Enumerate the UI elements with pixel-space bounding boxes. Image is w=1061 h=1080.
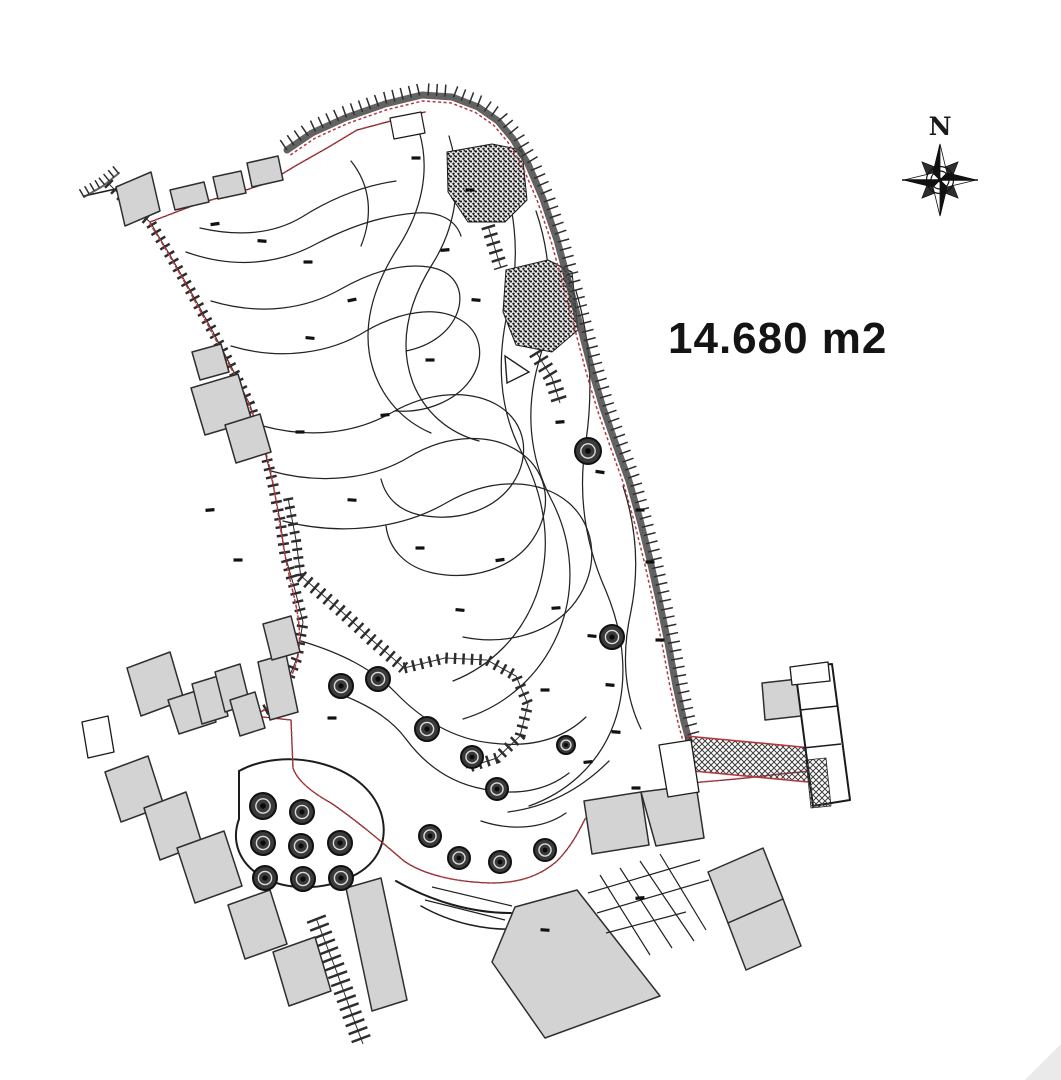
cliff-hatch-tick <box>504 120 513 128</box>
structure-outline <box>790 662 830 685</box>
building-footprint <box>584 792 649 854</box>
compass-rose-icon <box>900 140 980 220</box>
spot-elevation-mark <box>556 422 565 423</box>
tree-symbol-core <box>298 843 303 848</box>
tree-symbol-core <box>262 875 267 880</box>
tree-symbol-core <box>300 876 305 881</box>
tree-symbol-core <box>260 840 265 845</box>
cliff-hatch-tick <box>509 127 518 135</box>
spot-elevation-mark <box>258 241 267 242</box>
tree-symbol-core <box>337 840 342 845</box>
spot-elevation-mark <box>206 510 215 511</box>
contour-line <box>481 813 566 827</box>
building-footprint <box>116 172 160 226</box>
north-label: N <box>900 112 980 141</box>
spot-elevation-mark <box>472 300 481 301</box>
contour-line <box>351 161 368 246</box>
wall-hatch-tick <box>113 166 119 173</box>
tree-symbol-core <box>338 683 343 688</box>
step-line <box>620 868 672 948</box>
wall-hatch-tick <box>104 174 110 181</box>
building-footprint <box>263 616 300 660</box>
building-footprint <box>273 937 331 1006</box>
corner-shade <box>1025 1044 1061 1080</box>
tree-symbol-core <box>495 787 500 792</box>
step-line <box>606 912 686 933</box>
spot-elevation-mark <box>636 898 645 899</box>
structure-outline <box>505 356 529 383</box>
spot-elevation-mark <box>456 610 465 611</box>
spot-elevation-mark <box>541 930 550 931</box>
cliff-hatch-tick <box>428 83 429 95</box>
spot-elevation-mark <box>441 250 450 251</box>
wall-hatch-tick <box>99 178 105 185</box>
tree-symbol-core <box>260 803 266 809</box>
area-label: 14.680 m2 <box>668 314 887 364</box>
wall-line <box>396 881 511 913</box>
tree-symbol-core <box>457 856 462 861</box>
contour-line <box>368 131 431 433</box>
spot-elevation-mark <box>348 500 357 501</box>
contour-line <box>231 312 480 411</box>
retaining-wall-rail <box>301 576 404 668</box>
contour-line <box>186 213 461 263</box>
wall-hatch-tick <box>108 170 114 177</box>
step-line <box>425 900 505 920</box>
spot-elevation-mark <box>496 559 505 560</box>
structure-outline <box>82 716 114 758</box>
contour-line <box>211 266 460 351</box>
road-hatch <box>683 736 812 782</box>
step-line <box>640 861 694 941</box>
spot-elevation-mark <box>552 608 561 609</box>
tree-symbol-core <box>564 743 568 747</box>
building-footprint <box>228 890 287 959</box>
building-footprint <box>213 171 246 199</box>
contour-line <box>331 691 569 792</box>
tree-symbol-core <box>498 860 503 865</box>
building-footprint <box>492 890 660 1038</box>
tree-symbol-core <box>299 809 304 814</box>
contour-line <box>263 395 524 517</box>
spot-elevation-mark <box>584 762 593 763</box>
spot-elevation-mark <box>381 415 390 416</box>
wall-hatch-tick <box>85 186 90 194</box>
tree-symbol-core <box>338 875 343 880</box>
building-footprint <box>170 182 209 210</box>
spot-elevation-mark <box>588 636 597 637</box>
spot-elevation-mark <box>211 223 220 224</box>
cliff-hatch-tick <box>280 140 287 150</box>
wall-hatch-tick <box>95 180 100 188</box>
spot-elevation-mark <box>606 685 615 686</box>
cliff-hatch-tick <box>445 85 446 97</box>
cliff-hatch-tick <box>437 84 438 96</box>
building-footprint <box>230 692 265 736</box>
tree-symbol-core <box>609 634 614 639</box>
building-footprint <box>346 878 407 1011</box>
tree-symbol-core <box>585 448 591 454</box>
contour-line <box>453 153 545 681</box>
wall-hatch-tick <box>90 183 95 191</box>
spot-elevation-mark <box>348 299 357 301</box>
spot-elevation-mark <box>596 471 605 472</box>
tree-symbol-core <box>543 848 548 853</box>
tree-symbol-core <box>424 726 429 731</box>
site-plan-page: 14.680 m2 N <box>0 0 1061 1080</box>
cliff-hatch-tick <box>498 113 507 121</box>
spot-elevation-mark <box>612 732 621 733</box>
contour-line <box>271 438 546 575</box>
building-footprint <box>247 156 283 187</box>
wall-hatch-tick <box>79 189 84 197</box>
tree-symbol-core <box>375 676 380 681</box>
tree-symbol-core <box>428 834 433 839</box>
vegetation-patch <box>447 144 527 222</box>
spot-elevation-mark <box>306 338 315 339</box>
tree-symbol-core <box>470 755 475 760</box>
